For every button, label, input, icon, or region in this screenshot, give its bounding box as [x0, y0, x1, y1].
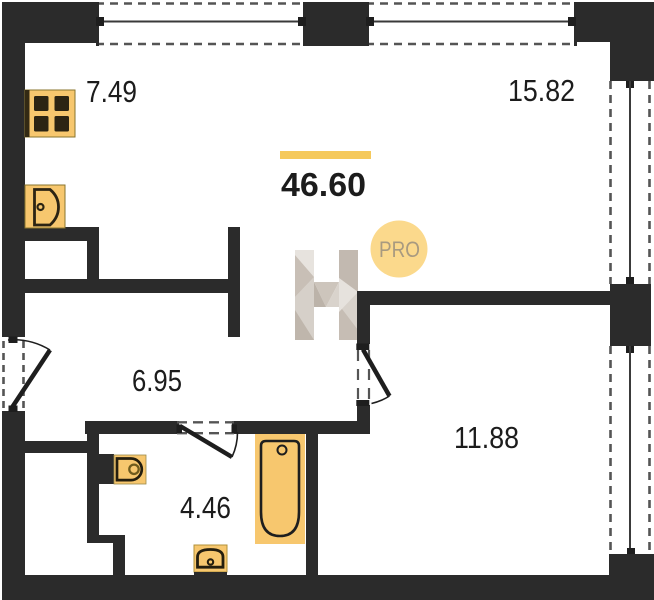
svg-text:4.46: 4.46 — [180, 490, 231, 525]
svg-text:15.82: 15.82 — [508, 73, 575, 108]
svg-text:PRO: PRO — [379, 237, 420, 262]
svg-text:6.95: 6.95 — [132, 363, 182, 398]
svg-text:11.88: 11.88 — [454, 420, 519, 455]
svg-text:46.60: 46.60 — [281, 166, 366, 203]
svg-text:7.49: 7.49 — [86, 74, 137, 109]
